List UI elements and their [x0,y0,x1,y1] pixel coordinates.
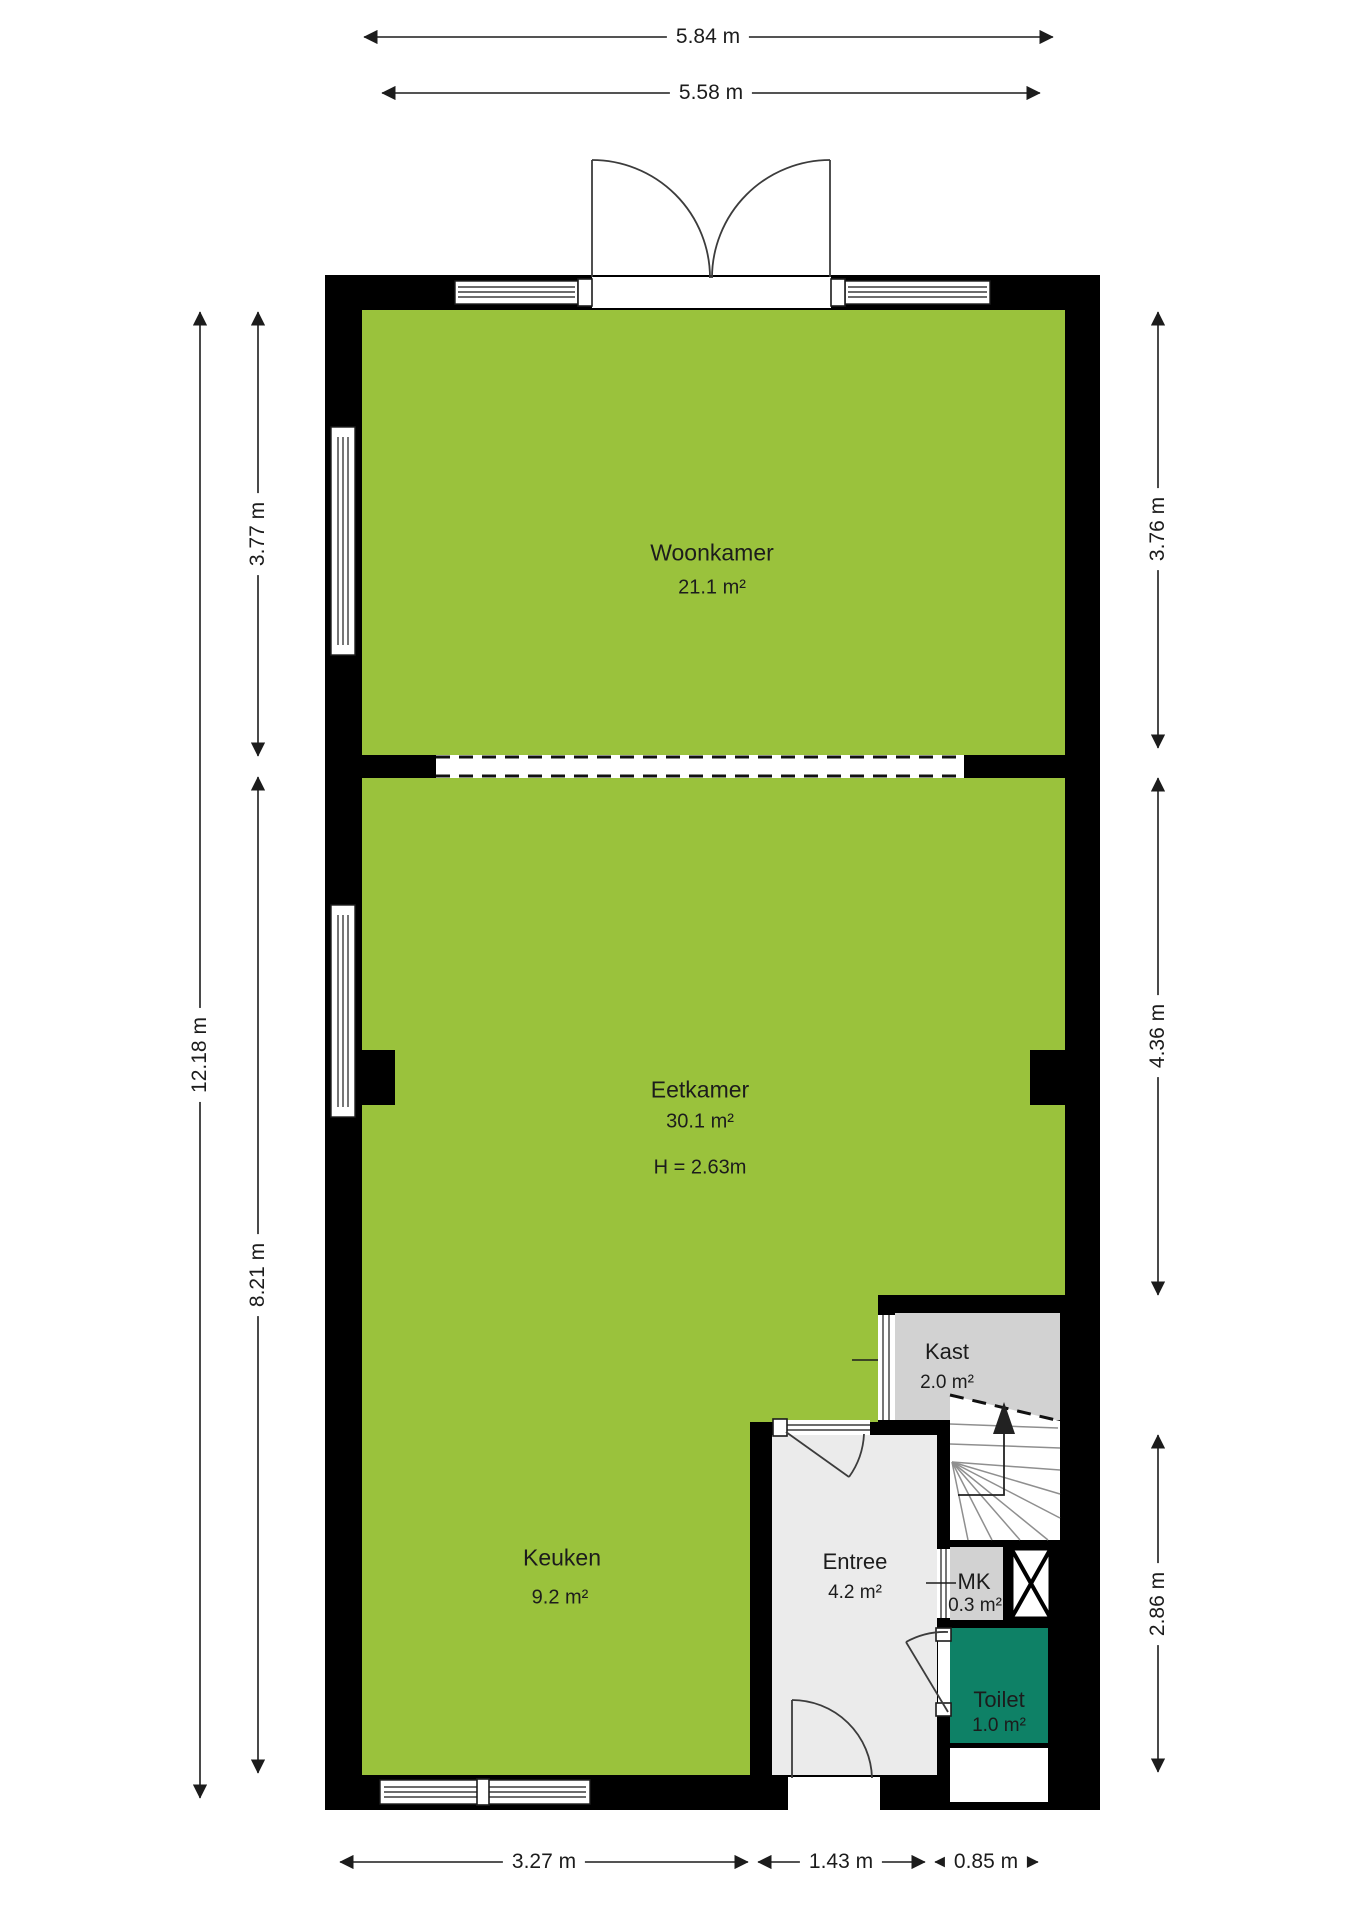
dim-left-upper: 3.77 m [246,493,270,575]
shaft-x-icon [1011,1548,1051,1619]
toilet-area: 1.0 m² [972,1715,1026,1737]
left-wall-pier [362,1050,395,1105]
dim-top-inner: 5.58 m [670,81,752,105]
top-window-left [455,281,578,304]
floorplan-canvas: Woonkamer 21.1 m² Eetkamer 30.1 m² H = 2… [0,0,1358,1920]
kast-label: Kast [925,1339,969,1365]
keuken-area: 9.2 m² [532,1587,589,1610]
keuken-window [380,1779,590,1805]
dim-right-upper: 3.76 m [1146,488,1170,570]
dim-bottom-left: 3.27 m [503,1850,585,1874]
dim-top-outer: 5.84 m [667,25,749,49]
eetkamer-area: 30.1 m² [666,1111,734,1134]
room-divider [436,755,964,778]
toilet-label: Toilet [973,1687,1024,1713]
eetkamer-ceiling-height: H = 2.63m [654,1157,747,1180]
dim-left-lower: 8.21 m [246,1234,270,1316]
mk-area: 0.3 m² [948,1595,1002,1617]
left-window-woonkamer [331,427,355,655]
eetkamer-label: Eetkamer [651,1077,749,1104]
entree-area: 4.2 m² [828,1582,882,1604]
woonkamer-label: Woonkamer [650,540,774,567]
dim-bottom-middle: 1.43 m [800,1850,882,1874]
toilet-window [950,1748,1048,1802]
staircase [950,1395,1060,1540]
french-doors [578,160,845,308]
woonkamer-area: 21.1 m² [678,577,746,600]
top-window-right [845,281,990,304]
entree-floor [772,1435,937,1775]
kast-area: 2.0 m² [920,1372,974,1394]
dim-right-middle: 4.36 m [1146,995,1170,1077]
keuken-label: Keuken [523,1545,601,1572]
left-window-eetkamer [331,905,355,1117]
dim-left-total: 12.18 m [188,1008,212,1102]
dim-bottom-right: 0.85 m [945,1850,1027,1874]
dim-right-lower: 2.86 m [1146,1563,1170,1645]
mk-label: MK [958,1569,991,1595]
woonkamer-floor [362,310,1065,755]
entree-label: Entree [823,1549,888,1575]
right-wall-pier [1030,1050,1065,1105]
